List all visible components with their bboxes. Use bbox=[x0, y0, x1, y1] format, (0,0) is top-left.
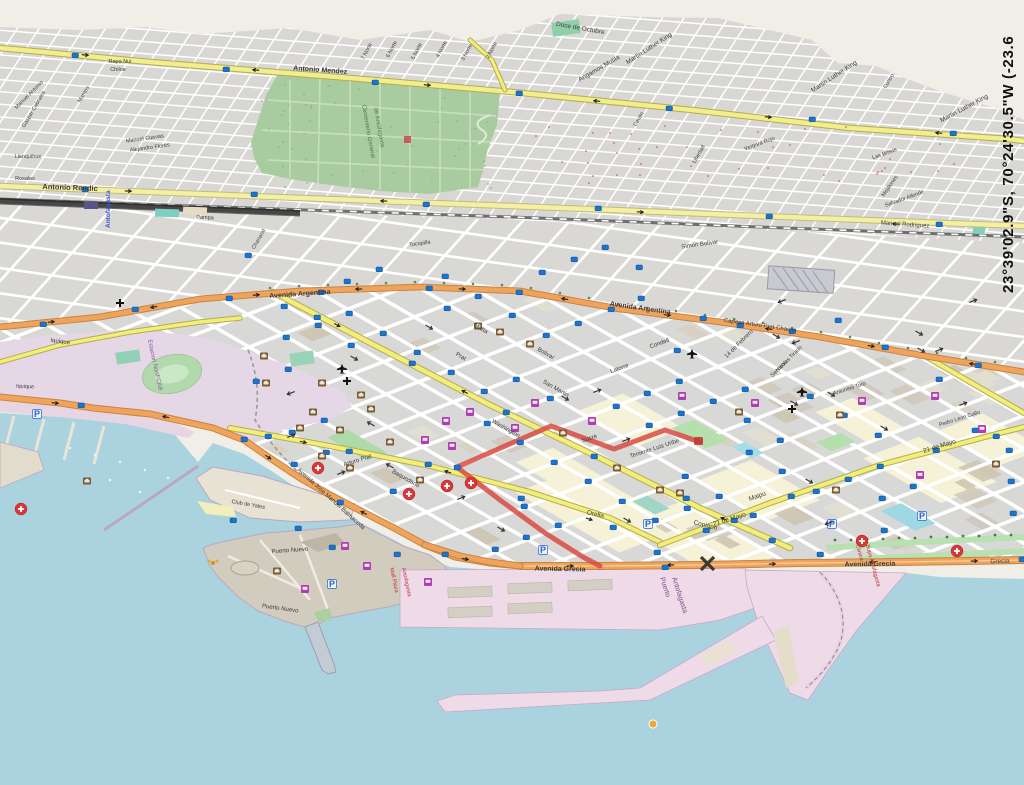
svg-text:Grecia: Grecia bbox=[990, 558, 1010, 566]
svg-text:P: P bbox=[919, 511, 925, 521]
svg-text:P: P bbox=[540, 545, 546, 555]
svg-text:P: P bbox=[34, 409, 40, 419]
svg-text:Antofagasta: Antofagasta bbox=[105, 190, 112, 228]
svg-text:Pampa: Pampa bbox=[196, 215, 215, 222]
svg-text:Llanquihue: Llanquihue bbox=[15, 154, 42, 160]
svg-text:P: P bbox=[329, 579, 335, 589]
svg-text:Avenida Grecia: Avenida Grecia bbox=[535, 566, 586, 574]
svg-text:P: P bbox=[645, 519, 651, 529]
svg-text:23°39'02.9"S, 70°24'30.5"W (-2: 23°39'02.9"S, 70°24'30.5"W (-23.6 bbox=[1000, 36, 1017, 293]
svg-text:Iquique: Iquique bbox=[16, 384, 34, 391]
svg-text:Rosales: Rosales bbox=[15, 176, 35, 182]
svg-text:Chiloe: Chiloe bbox=[110, 67, 126, 73]
svg-text:Rapa Nui: Rapa Nui bbox=[109, 59, 132, 65]
svg-text:P: P bbox=[829, 519, 835, 529]
